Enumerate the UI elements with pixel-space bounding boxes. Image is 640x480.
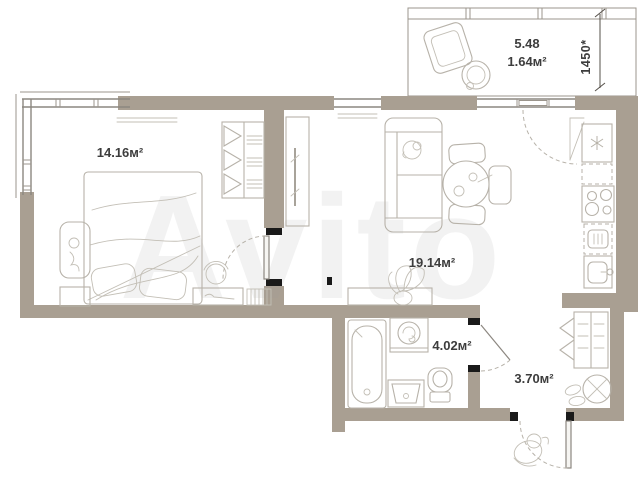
hall-pouf-shoes — [564, 375, 611, 407]
balcony-full-area-label: 5.48 — [514, 36, 539, 51]
balcony-armchair — [422, 21, 474, 75]
fridge — [582, 124, 612, 162]
bathtub — [348, 320, 386, 408]
toilet — [428, 368, 452, 402]
balcony-structure — [408, 8, 636, 96]
balcony-door-window-band — [477, 99, 575, 107]
bathroom-sink — [388, 380, 424, 407]
hall-wardrobe — [560, 312, 608, 368]
kitchen-sink — [584, 256, 613, 288]
balcony-pouf — [462, 61, 490, 90]
bathroom-furniture — [348, 318, 452, 408]
nightstand — [60, 222, 90, 278]
wall-kitchen-hall-stub — [562, 293, 616, 308]
floorplan-canvas: Avito — [0, 0, 640, 480]
balcony-reduced-area-label: 1.64м² — [507, 54, 547, 69]
bedroom-area-label: 14.16м² — [97, 145, 144, 160]
hallway-area-label: 3.70м² — [514, 371, 554, 386]
balcony-width-dimension-label: 1450* — [579, 39, 593, 74]
living-room-window — [334, 99, 381, 118]
wall-right-hallway — [610, 300, 624, 421]
opening-jamb — [327, 277, 332, 285]
wall-top-bedroom — [118, 96, 334, 110]
entrance-door — [510, 412, 574, 468]
wall-left — [20, 192, 34, 318]
kitchen-appliances — [570, 118, 614, 288]
wall-top-living — [381, 96, 477, 110]
balcony-door-swing — [523, 110, 577, 164]
balcony-window-mullions — [466, 8, 606, 19]
living-area-label: 19.14м² — [409, 255, 456, 270]
cat-on-sofa — [403, 141, 421, 159]
wall-bottom-left — [332, 408, 510, 421]
stove — [582, 186, 614, 222]
bathroom-area-label: 4.02м² — [432, 338, 472, 353]
bedroom-radiator-2 — [247, 289, 271, 305]
bedroom-radiator — [117, 118, 177, 122]
floorplan-page: Avito — [0, 0, 640, 480]
kitchen-counter — [582, 164, 612, 184]
wall-right-main — [616, 96, 638, 312]
oven — [584, 224, 612, 254]
balcony-dimension-line — [595, 9, 605, 91]
